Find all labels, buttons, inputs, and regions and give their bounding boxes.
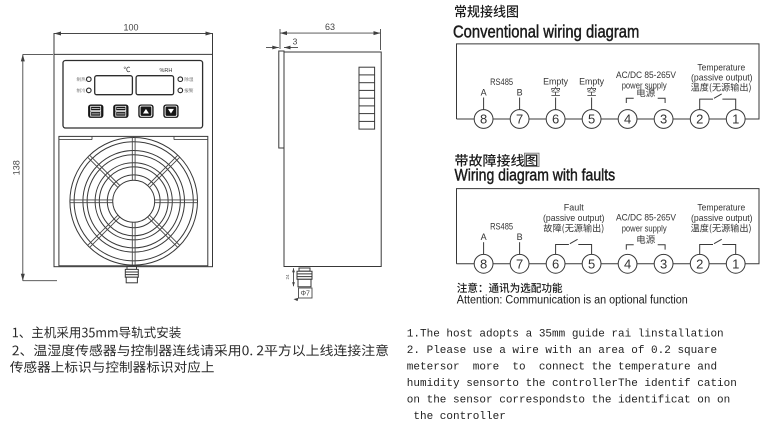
svg-text:metersor more to connect th: metersor more to connect the temperature… bbox=[407, 361, 717, 373]
svg-text:Φ7: Φ7 bbox=[300, 291, 310, 298]
svg-text:(passive output): (passive output) bbox=[543, 213, 605, 224]
svg-text:100: 100 bbox=[123, 23, 138, 33]
svg-text:Empty: Empty bbox=[579, 77, 604, 88]
svg-text:Empty: Empty bbox=[543, 77, 568, 88]
svg-text:the controller: the controller bbox=[407, 411, 506, 423]
svg-text:6: 6 bbox=[552, 112, 559, 127]
svg-text:7: 7 bbox=[516, 112, 523, 127]
svg-text:RS485: RS485 bbox=[490, 77, 513, 88]
svg-text:power supply: power supply bbox=[622, 223, 667, 234]
svg-text:RS485: RS485 bbox=[490, 222, 513, 233]
svg-text:Attention: Communication is an: Attention: Communication is an optional … bbox=[457, 294, 688, 306]
svg-text:1: 1 bbox=[732, 256, 739, 271]
svg-text:%RH: %RH bbox=[160, 68, 173, 74]
svg-text:humidity sensorto the controll: humidity sensorto the controllerThe iden… bbox=[407, 378, 737, 390]
svg-text:A: A bbox=[481, 87, 487, 97]
svg-text:B: B bbox=[517, 232, 523, 242]
svg-text:3: 3 bbox=[293, 37, 298, 47]
svg-text:2: 2 bbox=[696, 112, 703, 127]
svg-text:138: 138 bbox=[12, 160, 22, 175]
svg-text:2. Please use a wire with an a: 2. Please use a wire with an area of 0.2… bbox=[407, 345, 717, 357]
svg-text:5: 5 bbox=[588, 112, 595, 127]
svg-text:A: A bbox=[481, 232, 487, 242]
svg-text:4: 4 bbox=[624, 112, 631, 127]
svg-text:5: 5 bbox=[588, 256, 595, 271]
svg-text:(passive output): (passive output) bbox=[691, 73, 753, 84]
svg-text:AC/DC 85-265V: AC/DC 85-265V bbox=[616, 213, 677, 224]
svg-text:63: 63 bbox=[325, 22, 335, 32]
svg-text:4: 4 bbox=[624, 256, 631, 271]
svg-text:8: 8 bbox=[480, 256, 487, 271]
svg-text:2: 2 bbox=[696, 256, 703, 271]
svg-text:1.The host adopts a 35mm guide: 1.The host adopts a 35mm guide rai linst… bbox=[407, 328, 724, 340]
svg-text:8: 8 bbox=[480, 112, 487, 127]
svg-text:24: 24 bbox=[285, 274, 290, 280]
svg-text:B: B bbox=[517, 87, 523, 97]
svg-text:1: 1 bbox=[732, 112, 739, 127]
svg-text:Wiring diagram with faults: Wiring diagram with faults bbox=[455, 166, 616, 185]
svg-text:Conventional wiring diagram: Conventional wiring diagram bbox=[453, 21, 639, 41]
svg-text:(passive output): (passive output) bbox=[691, 213, 753, 224]
svg-text:3: 3 bbox=[660, 256, 667, 271]
svg-text:7: 7 bbox=[516, 256, 523, 271]
svg-text:on the sensor correspondsto th: on the sensor correspondsto the identifi… bbox=[407, 394, 730, 406]
svg-text:3: 3 bbox=[660, 112, 667, 127]
svg-text:6: 6 bbox=[552, 256, 559, 271]
